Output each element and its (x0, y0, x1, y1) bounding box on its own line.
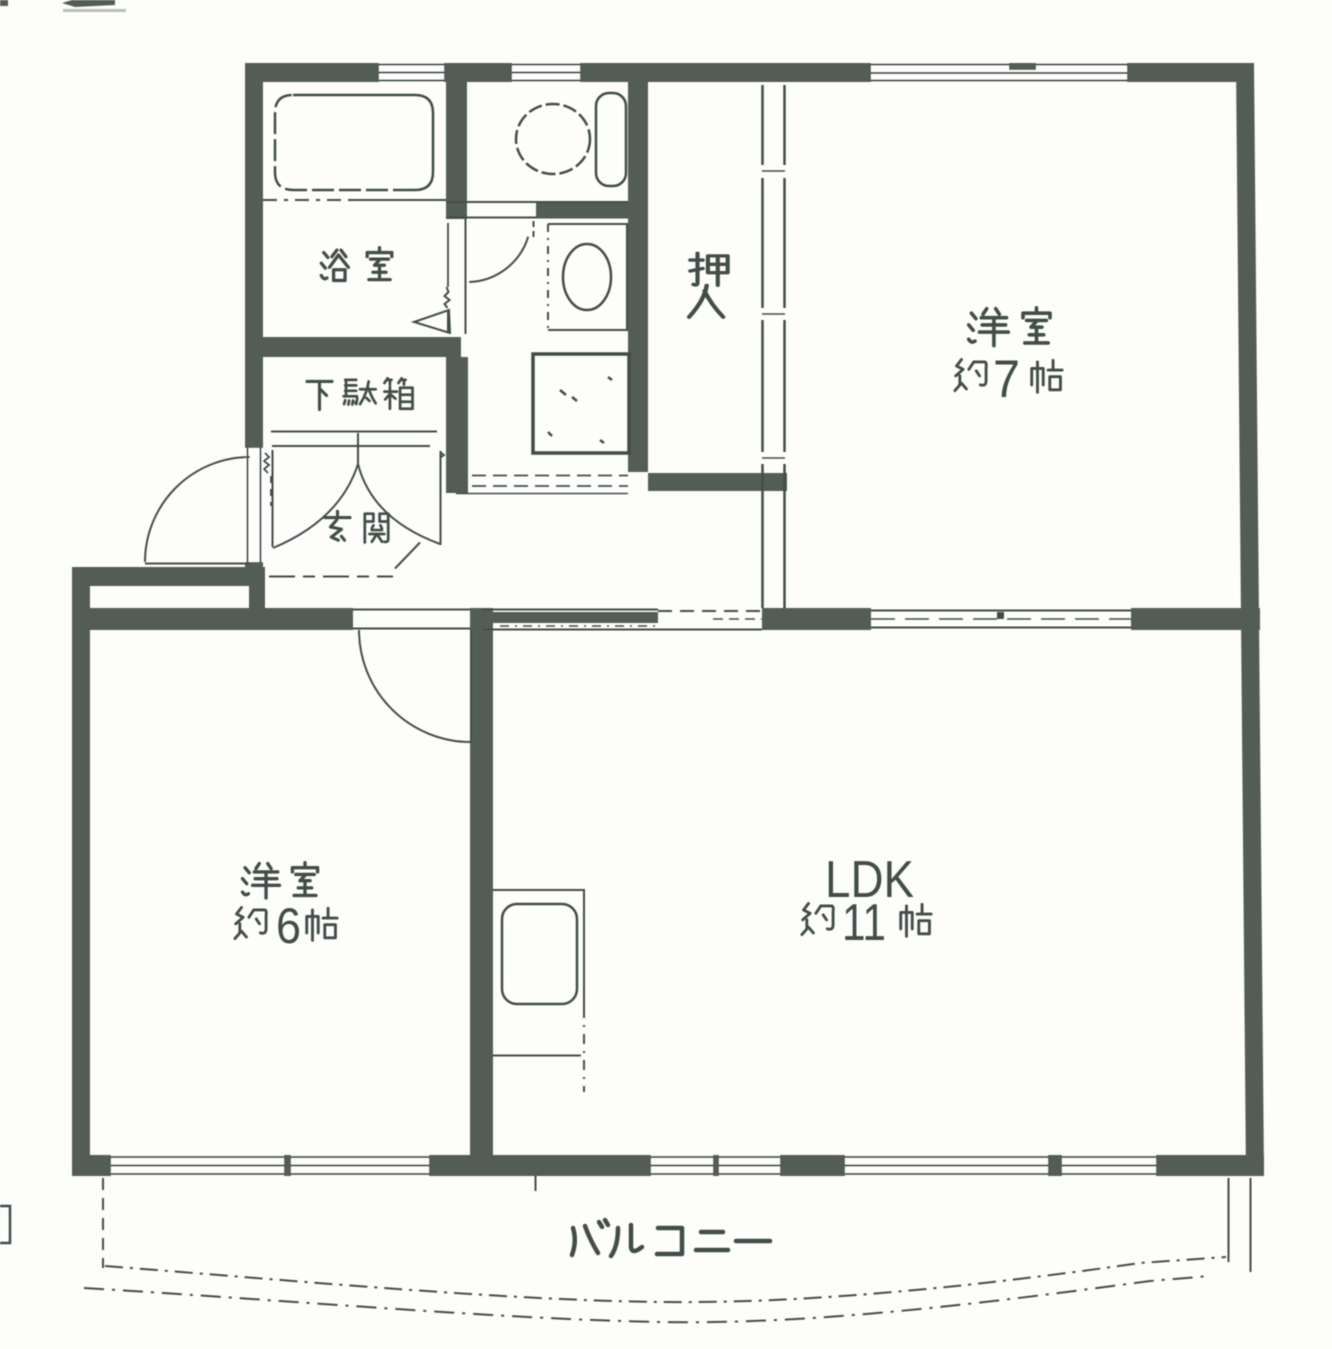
svg-text:7: 7 (993, 350, 1020, 409)
svg-text:11: 11 (842, 894, 886, 952)
svg-text:6: 6 (276, 898, 301, 954)
